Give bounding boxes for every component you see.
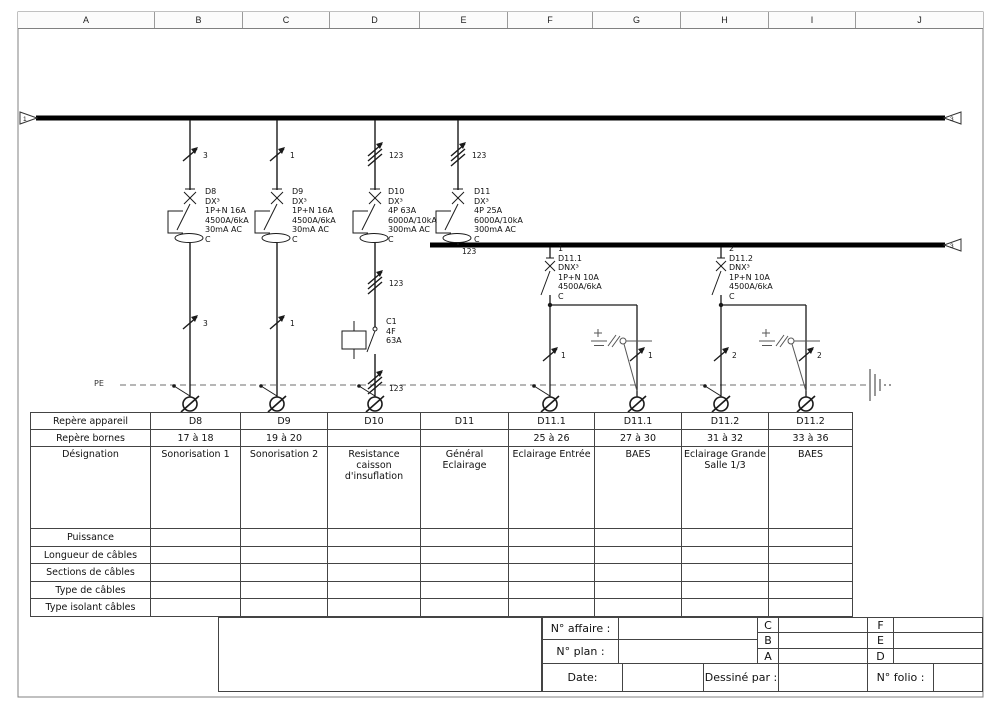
affaire-value [618, 617, 758, 640]
table-row: Type isolant câbles [31, 599, 853, 617]
empty-cell [151, 564, 241, 582]
empty-cell [595, 599, 682, 617]
table-row: Sections de câbles [31, 564, 853, 582]
rcbo-symbol [353, 189, 388, 243]
table-row: Puissance [31, 529, 853, 547]
rev-value-c [778, 617, 868, 633]
column-header-d: D [330, 12, 420, 28]
empty-cell [595, 582, 682, 599]
busbar-1: 1 3 [20, 112, 961, 124]
feeder-d11 [436, 120, 471, 245]
rev-value-e [893, 632, 983, 649]
rev-value-b [778, 632, 868, 649]
feeder-d9 [255, 120, 290, 397]
appareil-cell: D8 [151, 413, 241, 430]
empty-cell [682, 564, 769, 582]
wire-count-label: 1 [290, 151, 295, 160]
wire-count-label: 123 [389, 151, 403, 160]
breaker-symbol [712, 258, 726, 295]
pe-line [120, 369, 891, 401]
designation-cell: Sonorisation 2 [241, 447, 328, 529]
empty-cell [682, 547, 769, 564]
rcbo-symbol [255, 189, 290, 243]
terminal-icon [181, 396, 199, 412]
bornes-cell: 31 à 32 [682, 430, 769, 447]
terminal-icon [268, 396, 286, 412]
empty-cell [151, 599, 241, 617]
contactor-symbol [342, 321, 377, 359]
empty-cell [769, 582, 853, 599]
column-header-strip: A B C D E F G H I J [18, 12, 983, 29]
busbar2-right-ref: 3 [950, 243, 954, 250]
column-header-c: C [243, 12, 330, 28]
designation-cell: Général Eclairage [421, 447, 509, 529]
table-row: Désignation Sonorisation 1 Sonorisation … [31, 447, 853, 529]
empty-cell [769, 547, 853, 564]
empty-cell [151, 582, 241, 599]
breaker-label-d10: D10 DX³ 4P 63A 6000A/10kA 300mA AC C [388, 187, 437, 244]
empty-cell [509, 582, 595, 599]
rcbo-symbol [436, 189, 471, 243]
busbar1-left-ref: 1 [23, 116, 27, 123]
rev-label-d: D [867, 648, 894, 664]
feeder-d8 [168, 120, 203, 397]
titleblock-drawing-area [218, 617, 542, 692]
table-row: Type de câbles [31, 582, 853, 599]
date-value [622, 663, 704, 692]
dessine-label: Dessiné par : [703, 663, 779, 692]
plan-value [618, 639, 758, 664]
appareil-cell: D10 [328, 413, 421, 430]
bornes-cell: 33 à 36 [769, 430, 853, 447]
bornes-cell [421, 430, 509, 447]
empty-cell [241, 564, 328, 582]
wire-count-label: 2 [817, 351, 822, 360]
pe-label: PE [94, 379, 104, 388]
bornes-cell: 17 à 18 [151, 430, 241, 447]
earth-icon [870, 369, 891, 401]
appareil-cell: D11.1 [595, 413, 682, 430]
rev-label-e: E [867, 632, 894, 649]
table-row: Repère bornes 17 à 18 19 à 20 25 à 26 27… [31, 430, 853, 447]
contactor-label-c1: C1 4F 63A [386, 317, 402, 346]
row-label: Sections de câbles [31, 564, 151, 582]
designation-cell: Eclairage Grande Salle 1/3 [682, 447, 769, 529]
breaker-label-d9: D9 DX³ 1P+N 16A 4500A/6kA 30mA AC C [292, 187, 336, 244]
rev-label-f: F [867, 617, 894, 633]
wire-count-label: 1 [561, 351, 566, 360]
empty-cell [421, 564, 509, 582]
row-label: Repère appareil [31, 413, 151, 430]
appareil-cell: D11.2 [769, 413, 853, 430]
empty-cell [328, 547, 421, 564]
bornes-cell: 25 à 26 [509, 430, 595, 447]
bornes-cell [328, 430, 421, 447]
empty-cell [421, 599, 509, 617]
wire-count-label: 123 [462, 247, 476, 256]
wire-count-label: 123 [389, 384, 403, 393]
affaire-label: N° affaire : [542, 617, 619, 640]
empty-cell [241, 529, 328, 547]
empty-cell [682, 582, 769, 599]
empty-cell [421, 582, 509, 599]
breaker-label-d11-2: 2 D11.2 DNX³ 1P+N 10A 4500A/6kA C [729, 244, 773, 301]
rev-label-a: A [757, 648, 779, 664]
row-label: Repère bornes [31, 430, 151, 447]
terminal-icon [366, 396, 384, 412]
wire-count-label: 3 [203, 319, 208, 328]
empty-cell [595, 547, 682, 564]
rev-value-f [893, 617, 983, 633]
empty-cell [328, 529, 421, 547]
appareil-cell: D11.2 [682, 413, 769, 430]
emergency-light-icon [591, 329, 652, 391]
column-header-a: A [18, 12, 155, 28]
column-header-e: E [420, 12, 508, 28]
designation-cell: Resistance caisson d'insuflation [328, 447, 421, 529]
empty-cell [328, 582, 421, 599]
terminal-icon [712, 396, 730, 412]
empty-cell [151, 547, 241, 564]
column-header-j: J [856, 12, 983, 28]
rev-value-a [778, 648, 868, 664]
table-row: Repère appareil D8 D9 D10 D11 D11.1 D11.… [31, 413, 853, 430]
empty-cell [595, 529, 682, 547]
appareil-cell: D9 [241, 413, 328, 430]
breaker-label-d8: D8 DX³ 1P+N 16A 4500A/6kA 30mA AC C [205, 187, 249, 244]
designation-cell: BAES [769, 447, 853, 529]
empty-cell [328, 564, 421, 582]
empty-cell [241, 547, 328, 564]
rev-label-c: C [757, 617, 779, 633]
empty-cell [328, 599, 421, 617]
empty-cell [682, 529, 769, 547]
rev-label-b: B [757, 632, 779, 649]
terminals [181, 396, 815, 412]
row-label: Longueur de câbles [31, 547, 151, 564]
bornes-cell: 19 à 20 [241, 430, 328, 447]
row-label: Type isolant câbles [31, 599, 151, 617]
breaker-label-d11: D11 DX³ 4P 25A 6000A/10kA 300mA AC C [474, 187, 523, 244]
breaker-symbol [541, 258, 555, 295]
empty-cell [151, 529, 241, 547]
column-header-h: H [681, 12, 769, 28]
column-header-b: B [155, 12, 243, 28]
table-row: Longueur de câbles [31, 547, 853, 564]
folio-value [933, 663, 983, 692]
bornes-cell: 27 à 30 [595, 430, 682, 447]
empty-cell [682, 599, 769, 617]
empty-cell [509, 599, 595, 617]
empty-cell [241, 582, 328, 599]
wire-count-label: 2 [732, 351, 737, 360]
empty-cell [509, 564, 595, 582]
empty-cell [769, 599, 853, 617]
designation-cell: BAES [595, 447, 682, 529]
empty-cell [595, 564, 682, 582]
date-label: Date: [542, 663, 623, 692]
appareil-cell: D11.1 [509, 413, 595, 430]
pe-taps [172, 384, 721, 396]
row-label: Puissance [31, 529, 151, 547]
column-header-g: G [593, 12, 681, 28]
circuit-schedule-table: Repère appareil D8 D9 D10 D11 D11.1 D11.… [30, 412, 853, 617]
dessine-value [778, 663, 868, 692]
rcbo-symbol [168, 189, 203, 243]
terminal-icon [541, 396, 559, 412]
empty-cell [509, 529, 595, 547]
column-header-i: I [769, 12, 856, 28]
breaker-label-d11-1: 1 D11.1 DNX³ 1P+N 10A 4500A/6kA C [558, 244, 602, 301]
busbar1-right-ref: 3 [950, 116, 954, 123]
wire-count-label: 3 [203, 151, 208, 160]
row-label: Désignation [31, 447, 151, 529]
feeder-d10 [342, 120, 388, 397]
column-header-f: F [508, 12, 593, 28]
wire-count-label: 123 [389, 279, 403, 288]
empty-cell [241, 599, 328, 617]
empty-cell [769, 564, 853, 582]
appareil-cell: D11 [421, 413, 509, 430]
empty-cell [509, 547, 595, 564]
folio-label: N° folio : [867, 663, 934, 692]
empty-cell [421, 529, 509, 547]
designation-cell: Sonorisation 1 [151, 447, 241, 529]
schematic-page: 1 3 3 [0, 0, 1000, 706]
row-label: Type de câbles [31, 582, 151, 599]
empty-cell [421, 547, 509, 564]
rev-value-d [893, 648, 983, 664]
designation-cell: Eclairage Entrée [509, 447, 595, 529]
terminal-icon [628, 396, 646, 412]
empty-cell [769, 529, 853, 547]
plan-label: N° plan : [542, 639, 619, 664]
wire-count-label: 1 [648, 351, 653, 360]
terminal-icon [797, 396, 815, 412]
wire-count-label: 1 [290, 319, 295, 328]
emergency-light-icon [759, 329, 820, 391]
wire-count-label: 123 [472, 151, 486, 160]
